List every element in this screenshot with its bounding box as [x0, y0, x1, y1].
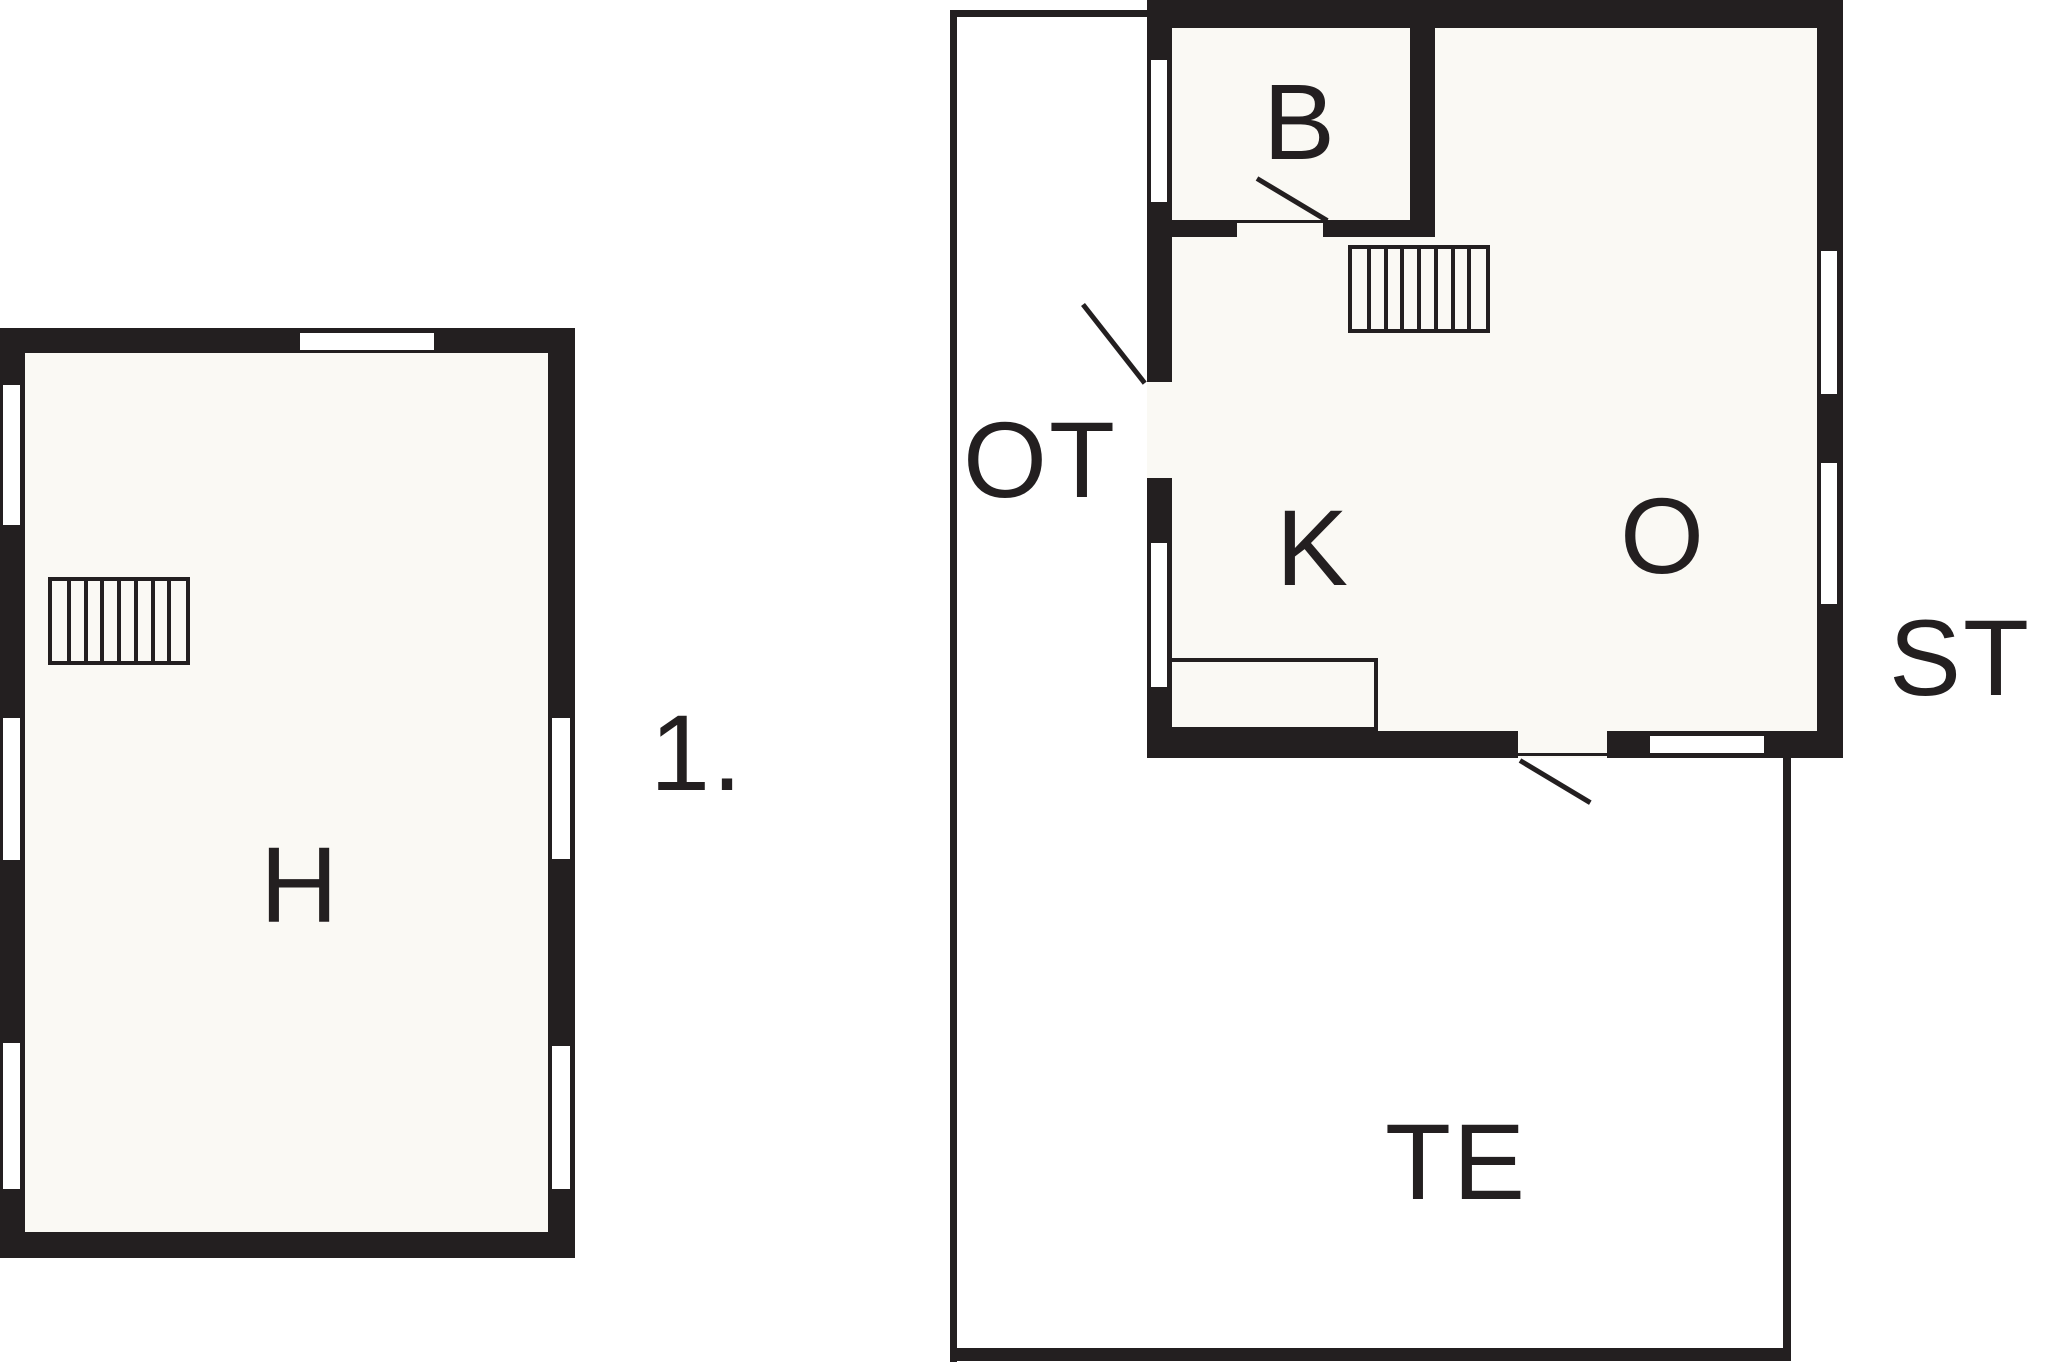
- house2-stairs-tread-5: [1434, 249, 1438, 329]
- house1-window-right-2: [549, 1043, 573, 1192]
- house2-stairs-tread-3: [1400, 249, 1404, 329]
- house1-window-left-2: [0, 715, 23, 863]
- terrace-label-ot: OT: [963, 406, 1117, 514]
- terrace-edge-left: [950, 10, 957, 1362]
- house2-window-left-1: [1148, 57, 1170, 205]
- entry-door-swing: [1081, 302, 1147, 384]
- terrace-door-threshold: [1518, 753, 1607, 756]
- terrace-edge-right: [1783, 758, 1791, 1361]
- terrace-label-te: TE: [1385, 1108, 1527, 1216]
- house1-window-left-1: [0, 382, 23, 528]
- house2-window-right-1: [1818, 248, 1840, 397]
- label-st: ST: [1889, 604, 2031, 712]
- terrace-edge-top: [950, 10, 1147, 17]
- kitchen-counter: [1168, 658, 1378, 731]
- floor-plan-canvas: H1.BKOOTSTTE: [0, 0, 2048, 1365]
- floor-number-label: 1.: [650, 699, 744, 807]
- house1-stairs-tread-4: [117, 581, 121, 661]
- house1-window-left-3: [0, 1040, 23, 1192]
- house1-stairs-tread-5: [134, 581, 138, 661]
- house1-stairs-tread-3: [100, 581, 104, 661]
- room-b-bottom-wall-left: [1172, 220, 1237, 237]
- house1-floor: [25, 353, 548, 1232]
- house1-window-top: [297, 330, 437, 353]
- terrace-edge-bottom: [950, 1348, 1791, 1361]
- house1-stairs-tread-2: [84, 581, 88, 661]
- house2-stairs-tread-1: [1367, 249, 1371, 329]
- house2-stairs: [1348, 245, 1490, 333]
- room-b-right-wall: [1410, 28, 1435, 220]
- terrace-door-swing: [1519, 758, 1592, 804]
- house2-window-left-2: [1148, 540, 1170, 690]
- house1-stairs-tread-6: [151, 581, 155, 661]
- house1-stairs-tread-7: [167, 581, 171, 661]
- room-label-h: H: [260, 831, 340, 939]
- house1-stairs: [48, 577, 190, 665]
- house2-stairs-tread-6: [1451, 249, 1455, 329]
- house2-stairs-tread-2: [1384, 249, 1388, 329]
- entry-door-opening: [1147, 382, 1172, 478]
- house2-stairs-tread-4: [1417, 249, 1421, 329]
- room-b-bottom-wall-right: [1323, 220, 1435, 237]
- house2-stairs-tread-7: [1467, 249, 1471, 329]
- room-label-o: O: [1620, 482, 1706, 590]
- room-b-door-threshold: [1237, 220, 1323, 223]
- room-label-k: K: [1276, 494, 1350, 602]
- house1-window-right-1: [549, 715, 573, 862]
- room-label-b: B: [1263, 68, 1337, 176]
- house2-window-bottom: [1647, 733, 1767, 756]
- house1-stairs-tread-1: [67, 581, 71, 661]
- house2-window-right-2: [1818, 460, 1840, 607]
